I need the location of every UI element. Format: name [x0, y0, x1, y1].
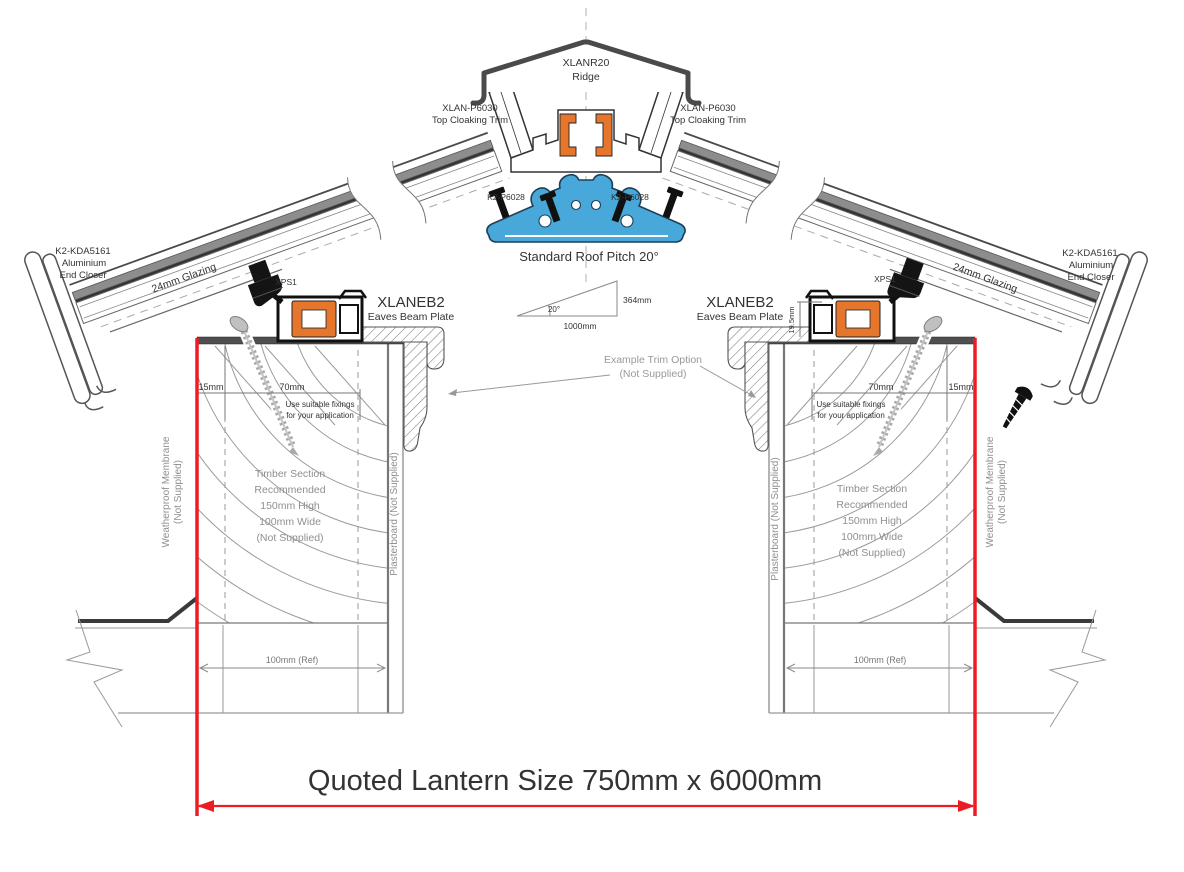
dim-edge-label-right: 15mm	[948, 382, 973, 392]
fixings-note-right-1: Use suitable fixings	[817, 400, 886, 409]
left-timber-note-2: Recommended	[254, 484, 325, 496]
pitch-title-label: Standard Roof Pitch 20°	[519, 249, 659, 264]
right-timber-note: Timber Section Recommended 150mm High 10…	[836, 483, 907, 559]
right-membrane-wrap	[975, 598, 1094, 621]
fixings-note-right-2: for your application	[817, 411, 885, 420]
ridge-screw-port-right	[592, 201, 601, 210]
end-closer-name-label-left: End Closer	[60, 270, 107, 281]
end-closer-part-label-right: K2-KDA5161	[1062, 248, 1117, 259]
membrane-label-right-2: (Not Supplied)	[997, 460, 1008, 524]
ridge-name-label: Ridge	[572, 71, 600, 83]
spacer-label-left: XPS1	[275, 277, 297, 287]
left-timber-note-5: (Not Supplied)	[256, 532, 323, 544]
lantern-section-page: XLANR20 Ridge XLAN-P6030 Top Cloaking Tr…	[0, 0, 1184, 872]
pitch-triangle	[517, 281, 617, 316]
eaves-name-label-left: Eaves Beam Plate	[368, 311, 455, 323]
end-closer-material-label-right: Aluminium	[1069, 260, 1113, 271]
left-timber-note: Timber Section Recommended 150mm High 10…	[254, 468, 325, 544]
trim-leader-arrow-left	[448, 389, 457, 396]
trim-option-leaders	[452, 366, 753, 396]
right-timber-note-5: (Not Supplied)	[838, 547, 905, 559]
right-beam-chamber	[814, 305, 832, 333]
left-timber-note-1: Timber Section	[255, 468, 325, 480]
cloaking-name-label-left: Top Cloaking Trim	[432, 115, 508, 126]
left-thermal-break-cavity	[302, 310, 326, 328]
cloaking-name-label-right: Top Cloaking Trim	[670, 115, 746, 126]
left-membrane-wrap	[78, 598, 197, 621]
right-timber-note-2: Recommended	[836, 499, 907, 511]
lantern-section-diagram: XLANR20 Ridge XLAN-P6030 Top Cloaking Tr…	[0, 0, 1184, 872]
eaves-name-label-right: Eaves Beam Plate	[697, 311, 784, 323]
ref-dimensions	[200, 664, 972, 672]
ridge-part-label: XLANR20	[563, 57, 610, 69]
left-timber-note-4: 100mm Wide	[259, 516, 321, 528]
left-beam-chamber	[340, 305, 358, 333]
fixings-note-left-2: for your application	[286, 411, 354, 420]
right-timber-note-1: Timber Section	[837, 483, 907, 495]
ridge-clamp-label-right: K2-P6028	[611, 192, 649, 202]
cloaking-part-label-left: XLAN-P6030	[442, 103, 497, 114]
ridge-clamp-bolt-outer-right	[658, 186, 683, 220]
ridge-platform	[511, 110, 661, 172]
right-timber-note-3: 150mm High	[842, 515, 902, 527]
screw-icon	[997, 383, 1035, 431]
quoted-size-label: Quoted Lantern Size 750mm x 6000mm	[308, 765, 822, 797]
membrane-label-right-1: Weatherproof Membrane	[985, 436, 996, 547]
trim-option-label-2: (Not Supplied)	[619, 368, 686, 380]
fixings-note-left-1: Use suitable fixings	[286, 400, 355, 409]
ridge-profile	[487, 175, 685, 242]
end-closer-part-label-left: K2-KDA5161	[55, 246, 110, 257]
ridge-screw-port-left	[572, 201, 581, 210]
membrane-label-left-1: Weatherproof Membrane	[161, 436, 172, 547]
ridge-boss-right	[621, 215, 633, 227]
plasterboard-label-left: Plasterboard (Not Supplied)	[389, 452, 400, 575]
ref-dim-label-right: 100mm (Ref)	[854, 655, 907, 665]
plasterboard-label-right: Plasterboard (Not Supplied)	[770, 457, 781, 580]
pitch-angle-label: 20°	[548, 305, 560, 314]
right-pane-line-1	[678, 156, 1092, 307]
pitch-rise-label: 364mm	[623, 295, 651, 305]
eaves-part-label-left: XLANEB2	[377, 294, 445, 311]
ridge-clamp-label-left: K2-P6028	[487, 192, 525, 202]
ref-dim-label-left: 100mm (Ref)	[266, 655, 319, 665]
eaves-part-label-right: XLANEB2	[706, 294, 774, 311]
end-closer-material-label-left: Aluminium	[62, 258, 106, 269]
dim-plate-label-left: 70mm	[279, 382, 304, 392]
dim-edge-label-left: 15mm	[198, 382, 223, 392]
end-closer-name-label-right: End Closer	[1068, 272, 1115, 283]
right-end-closer-foot	[1054, 392, 1073, 407]
trim-option-label-1: Example Trim Option	[604, 354, 702, 366]
quoted-dimension-lines	[197, 338, 975, 816]
pitch-run-label: 1000mm	[563, 321, 596, 331]
left-timber-note-3: 150mm High	[260, 500, 320, 512]
dim-plate-label-right: 70mm	[868, 382, 893, 392]
spacer-label-right: XPS1	[874, 274, 896, 284]
right-thermal-break-cavity	[846, 310, 870, 328]
plate-height-dim-label: 19.5mm	[787, 306, 796, 333]
right-end-closer-foot-2	[1041, 374, 1060, 389]
right-timber-note-4: 100mm Wide	[841, 531, 903, 543]
ridge-boss-left	[539, 215, 551, 227]
cloaking-part-label-right: XLAN-P6030	[680, 103, 735, 114]
membrane-label-left-2: (Not Supplied)	[173, 460, 184, 524]
